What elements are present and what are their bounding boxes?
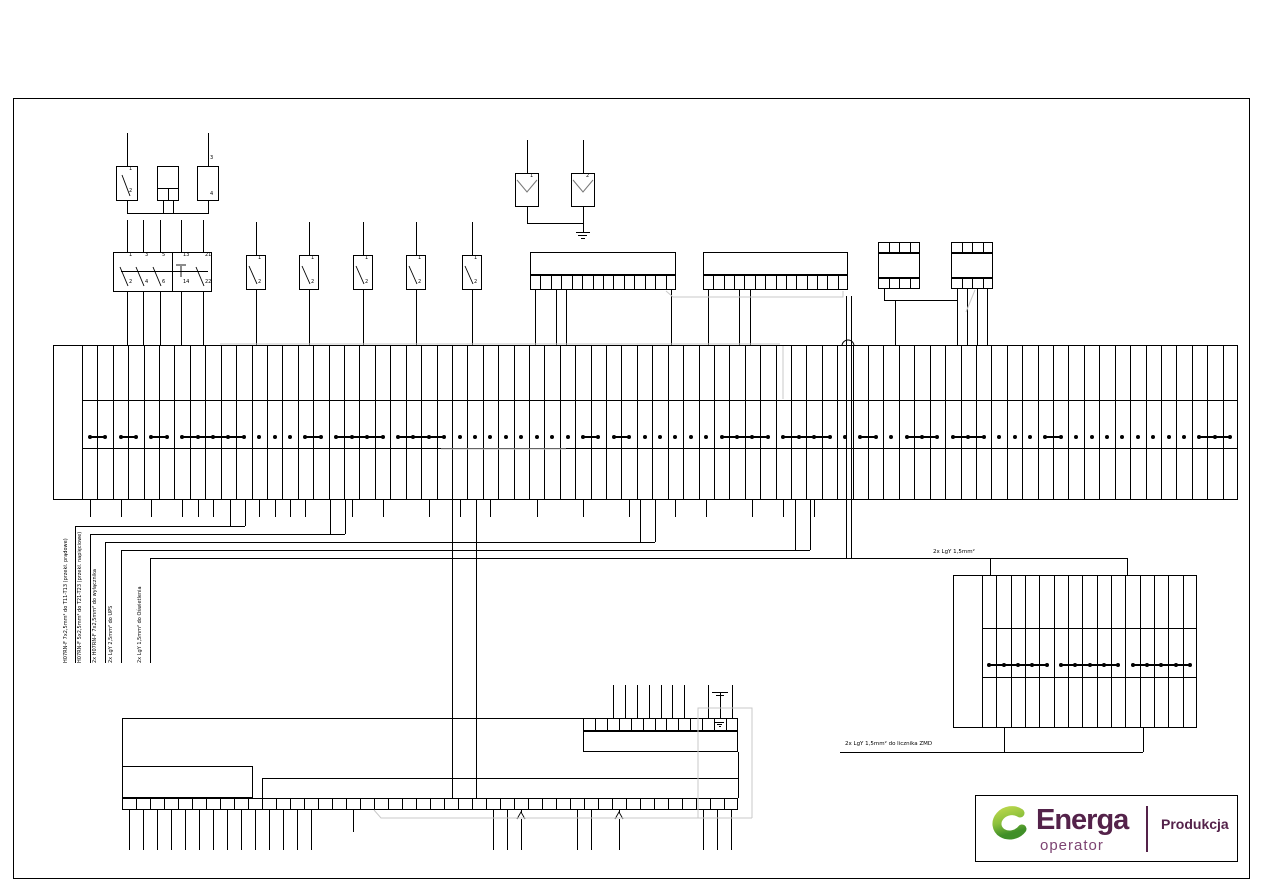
terminal-divider [584,799,585,809]
terminal-jumper [583,436,598,438]
outgoing-wire [507,810,508,850]
terminal-dot [458,435,462,439]
terminal-divider [776,345,777,500]
wire-v [309,222,310,255]
terminal-divider [755,276,756,289]
incoming-wire [649,685,650,718]
terminal-divider [961,345,962,500]
meter-cable-wire [840,752,1143,753]
terminal-divider [765,276,766,289]
terminal-divider [714,719,715,730]
terminal-divider [930,345,931,500]
terminal-divider [972,243,973,252]
strip-tail-wire [352,500,353,517]
incoming-wire [637,685,638,718]
terminal-divider [1039,575,1040,728]
terminal-divider [914,345,915,500]
terminal-divider [1176,345,1177,500]
lighting-cable-label: 2x LgY 1,5mm² [933,549,975,555]
terminal-divider [514,345,515,500]
terminal-divider [606,345,607,500]
wire-v [472,222,473,255]
strip-tail-wire [383,500,384,517]
terminal-divider [883,345,884,500]
cable-run-label: 2x LgY 2,5mm² do UPS [107,523,117,663]
terminal-divider [290,799,291,809]
terminal-divider [282,345,283,500]
terminal-divider [1068,345,1069,500]
pin-label: 3 [145,253,148,259]
strip-tail-wire [460,500,461,517]
wire-v [127,220,128,252]
terminal-divider [668,345,669,500]
strip-tail-wire [675,500,676,517]
terminal-jumper [151,436,166,438]
terminal-divider [529,345,530,500]
terminal-divider [360,799,361,809]
pin-label: 2 [129,280,132,286]
terminal-divider [570,799,571,809]
terminal-divider [344,345,345,500]
terminal-jumper [783,436,829,438]
terminal-divider [346,799,347,809]
terminal-divider [724,276,725,289]
cable-run [121,550,810,551]
terminal-divider [591,345,592,500]
pin-label: 1 [418,256,421,262]
strip-tail-wire [783,500,784,517]
terminal-divider [643,719,644,730]
terminal-divider [983,279,984,288]
pin-label: 22 [205,280,211,286]
terminal-dot [1136,435,1140,439]
terminal-divider [421,345,422,500]
terminal-divider [714,345,715,500]
terminal-divider [430,799,431,809]
wire-v [967,289,968,345]
wire-h [527,223,584,224]
bottom-block-band [583,731,738,752]
terminal-divider [560,345,561,500]
terminal-divider [248,799,249,809]
terminal-divider [144,345,145,500]
terminal-jumper [1045,436,1060,438]
strip-tail-wire [275,500,276,517]
terminal-divider [910,279,911,288]
terminal-divider [683,345,684,500]
ground-bar [717,724,722,725]
wire-v [535,290,536,345]
pin-label: 4 [145,280,148,286]
outgoing-wire [619,810,620,850]
strip-tail-wire [290,500,291,517]
terminal-divider [822,345,823,500]
pin-label: 1 [129,167,132,173]
terminal-jumper [860,436,875,438]
wire-v [143,220,144,252]
outgoing-wire [199,810,200,850]
single-breaker-box [246,255,266,290]
terminal-divider [498,345,499,500]
wire-v [181,220,182,252]
terminal-divider [1053,345,1054,500]
terminal-divider [760,345,761,500]
terminal-jumper [90,436,105,438]
terminal-dot [1013,435,1017,439]
terminal-divider [619,719,620,730]
pin-label: 1 [530,174,533,180]
wire-v [655,500,656,542]
pin-label: 13 [183,253,189,259]
terminal-jumper [305,436,320,438]
strip-tail-wire [121,500,122,517]
terminal-divider [1168,575,1169,728]
pin-label: 2 [365,280,368,286]
wire-v [476,500,477,798]
terminal-divider [699,345,700,500]
terminal-divider [1140,575,1141,728]
wire-v [160,292,161,345]
outgoing-wire [157,810,158,850]
input-switch-box [116,166,138,201]
terminal-divider [1082,575,1083,728]
terminal-divider [726,719,727,730]
terminal-divider [899,243,900,252]
outgoing-wire [311,810,312,850]
main-strip-outline [53,345,1238,500]
terminal-divider [332,799,333,809]
terminal-dot [1090,435,1094,439]
terminal-divider [655,276,656,289]
terminal-divider [1054,575,1055,728]
wire-v [168,189,169,200]
terminal-jumper [398,436,444,438]
terminal-divider [817,276,818,289]
terminal-dot [1028,435,1032,439]
energa-logo-icon [987,804,1033,850]
terminal-divider [972,279,973,288]
wire-v [345,500,346,534]
terminal-divider [837,345,838,500]
pin-label: 14 [183,280,189,286]
terminal-divider [1025,575,1026,728]
terminal-divider [678,719,679,730]
pin-label: 2 [586,174,589,180]
terminal-divider [1011,575,1012,728]
strip-tail-wire [90,500,91,517]
terminal-jumper [953,436,984,438]
terminal-divider [910,243,911,252]
terminal-divider [899,345,900,500]
strip-tail-wire [198,500,199,517]
terminal-divider [1183,575,1184,728]
terminal-divider [983,243,984,252]
wire-v [143,292,144,345]
wire-v [895,300,896,345]
terminal-divider [603,276,604,289]
terminal-divider [996,575,997,728]
terminal-dot [1167,435,1171,439]
wire-v [884,289,885,300]
incoming-wire [625,685,626,718]
cable-run-label: H07RN-F 7x2,5mm² do T11-T13 (przekł. prą… [62,523,72,663]
ground-bar [712,692,728,693]
pin-label: 2 [129,189,132,195]
terminal-divider [899,279,900,288]
right-strip-outline [953,575,1197,728]
terminal-divider [631,719,632,730]
terminal-divider [734,276,735,289]
outgoing-wire [241,810,242,850]
terminal-dot [504,435,508,439]
terminal-divider [444,799,445,809]
strip-inner-line [82,448,1238,449]
terminal-divider [838,276,839,289]
pin-label: 3 [210,156,213,162]
terminal-dot [689,435,693,439]
terminal-divider [402,799,403,809]
pin-label: 21 [205,253,211,259]
pin-label: 2 [311,280,314,286]
wire-v [556,290,557,345]
terminal-divider [702,719,703,730]
relay-body [878,253,920,278]
terminal-divider [1068,575,1069,728]
terminal-divider [551,276,552,289]
terminal-divider [645,276,646,289]
terminal-divider [514,799,515,809]
terminal-dot [658,435,662,439]
pin-label: 1 [474,256,477,262]
incoming-wire [708,685,709,718]
terminal-divider [164,799,165,809]
wire-v [738,752,739,798]
wire-v [671,290,672,345]
terminal-divider [150,799,151,809]
strip-tail-wire [182,500,183,517]
terminal-divider [1130,345,1131,500]
single-breaker-box [462,255,482,290]
wire-v [472,290,473,345]
terminal-divider [159,345,160,500]
strip-tail-wire [814,500,815,517]
terminal-divider [827,276,828,289]
wire-v [203,292,204,345]
terminal-divider [655,719,656,730]
terminal-divider [962,243,963,252]
outgoing-wire [703,810,704,850]
wire-v [416,222,417,255]
terminal-divider [796,276,797,289]
terminal-dot [473,435,477,439]
terminal-divider [666,276,667,289]
cable-run [105,542,106,663]
wire-v [256,222,257,255]
incoming-wire [684,685,685,718]
terminal-divider [236,345,237,500]
terminal-jumper [614,436,629,438]
outgoing-wire [521,810,522,850]
strip-tail-wire [213,500,214,517]
terminal-divider [713,276,714,289]
terminal-divider [190,345,191,500]
incoming-wire [732,685,733,718]
terminal-divider [416,799,417,809]
terminal-divider [945,345,946,500]
crossing-wire [846,296,847,558]
terminal-divider [1111,575,1112,728]
incoming-wire [672,685,673,718]
strip-tail-wire [259,500,260,517]
terminal-divider [304,799,305,809]
breaker-linkage [121,271,208,272]
terminal-divider [375,345,376,500]
terminal-divider [690,719,691,730]
strip-b-body [703,252,848,275]
pin-label: 2 [258,280,261,286]
wire-v [363,290,364,345]
wire-v [245,500,246,526]
terminal-divider [205,345,206,500]
wire-v [583,140,584,173]
wire-v [173,201,174,213]
wire-v [987,289,988,345]
terminal-divider [1115,345,1116,500]
terminal-divider [113,345,114,500]
terminal-divider [452,345,453,500]
terminal-jumper [989,664,1046,666]
wire-v [230,500,231,526]
wire-v [527,140,528,173]
terminal-divider [1207,345,1208,500]
pin-label: 4 [210,192,213,198]
terminal-divider [486,799,487,809]
wire-v [957,289,958,345]
terminal-jumper [722,436,768,438]
surge-arrester-box [515,173,539,207]
terminal-divider [668,799,669,809]
outgoing-wire [591,810,592,850]
aux-device-box [197,166,219,201]
pin-label: 1 [258,256,261,262]
strip-tail-wire [305,500,306,517]
wire-v [750,290,751,345]
terminal-divider [682,799,683,809]
terminal-divider [1154,575,1155,728]
terminal-divider [1223,345,1224,500]
wire-v [160,220,161,252]
terminal-divider [595,719,596,730]
outgoing-wire [353,810,354,832]
strip-tail-wire [151,500,152,517]
terminal-divider [178,799,179,809]
terminal-dot [1105,435,1109,439]
outgoing-wire [283,810,284,850]
logo-operator-text: operator [1040,837,1104,854]
strip-tail-wire [583,500,584,517]
terminal-divider [313,345,314,500]
strip-inner-line [982,628,1197,629]
terminal-jumper [121,436,136,438]
pin-label: 1 [311,256,314,262]
terminal-divider [575,345,576,500]
terminal-divider [962,279,963,288]
terminal-divider [542,799,543,809]
wire-v [1004,728,1005,752]
terminal-divider [318,799,319,809]
wire-v [566,290,567,345]
wire-h [122,718,583,719]
ground-bar [576,232,590,233]
terminal-divider [1161,345,1162,500]
terminal-divider [128,345,129,500]
outgoing-wire [171,810,172,850]
terminal-divider [710,799,711,809]
cable-run-label: 2x H07RN-F 7x2,5mm² do wyłącznika [91,523,101,663]
terminal-dot [273,435,277,439]
wire-v [1143,728,1144,752]
pin-label: 6 [162,280,165,286]
wire-v [309,290,310,345]
cable-run [90,534,345,535]
incoming-wire [613,685,614,718]
terminal-divider [666,719,667,730]
terminal-divider [467,345,468,500]
cable-run [150,558,1127,559]
wire-v [416,290,417,345]
schematic-drawing: 123413513212461422121212121212H07RN-F 7x… [0,0,1263,893]
terminal-divider [786,276,787,289]
terminal-divider [192,799,193,809]
terminal-divider [388,799,389,809]
cable-run [105,542,655,543]
pin-label: 1 [365,256,368,262]
terminal-divider [607,719,608,730]
outgoing-wire [297,810,298,850]
cable-run-label: H07RN-F 5x2,5mm² do T21-T23 (przekł. nap… [76,523,86,663]
logo-brand-text: Energa [1036,804,1128,837]
terminal-divider [598,799,599,809]
terminal-divider [1125,575,1126,728]
single-breaker-box [353,255,373,290]
logo-produkcja-text: Produkcja [1161,816,1229,832]
terminal-divider [359,345,360,500]
terminal-divider [1007,345,1008,500]
terminal-divider [696,799,697,809]
schematic-canvas: 123413513212461422121212121212H07RN-F 7x… [0,0,1263,893]
terminal-divider [458,799,459,809]
terminal-divider [806,345,807,500]
wire-v [127,292,128,345]
terminal-divider [868,345,869,500]
terminal-divider [582,276,583,289]
terminal-divider [544,345,545,500]
crossing-wire [851,296,852,558]
cable-run-label: 2x LgY 1,5mm² do Oświetlenia [136,523,146,663]
strip-a-body [530,252,676,275]
terminal-jumper [182,436,244,438]
relay-body [951,253,993,278]
wire-h [127,213,209,214]
wire-v [330,500,331,534]
wire-v [172,253,173,291]
cable-run [121,550,122,663]
terminal-divider [621,345,622,500]
terminal-divider [252,345,253,500]
wire-h [262,778,738,779]
terminal-divider [776,276,777,289]
terminal-divider [626,799,627,809]
